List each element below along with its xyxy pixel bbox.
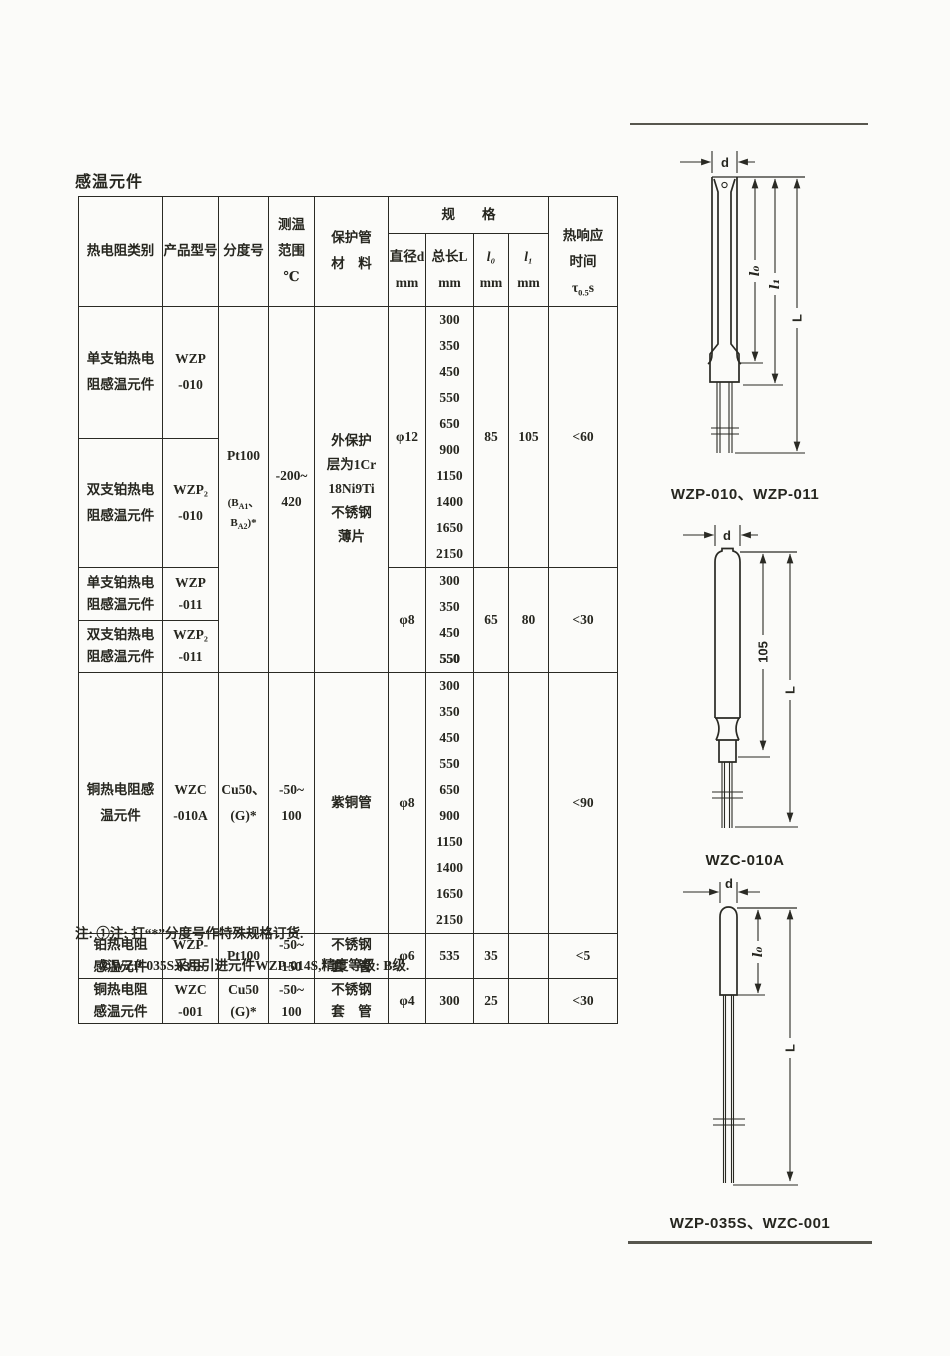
cell-response-time: <90 [549,672,618,933]
dim-label-d: d [721,155,729,170]
diagram-wzc010a-probe: d 105 L [655,525,830,845]
dim-label-d: d [725,876,733,891]
spec-table: 热电阻类别 产品型号 分度号 测温 范围 ℃ 保护管 材 料 规 格 热响应 时… [78,196,618,1024]
page-title: 感温元件 [75,168,143,192]
cell-model: WZC -001 [163,978,219,1023]
cell-model: WZP₂ -010 [163,438,219,567]
cell-index-no: Cu50 (G)* [219,978,269,1023]
cell-sheath-material: 不锈钢 套 管 [315,978,389,1023]
cell-model: WZP -010 [163,306,219,438]
dim-label-L: L [783,1044,798,1052]
cell-category: 铜热电阻 感温元件 [79,978,163,1023]
resp-line2: 时间 [570,254,597,269]
cell-l1: 80 [509,567,549,672]
cell-total-lengths: 535 [426,933,474,978]
cell-l1: 105 [509,306,549,567]
col-header-category: 热电阻类别 [79,197,163,307]
col-header-spec-group: 规 格 [389,197,549,234]
cell-sheath-material: 紫铜管 [315,672,389,933]
cell-l0: 25 [474,978,509,1023]
cell-temp-range: -200~ 420 [269,306,315,672]
cell-index-no: Pt100 (BA1、BA2)* [219,306,269,672]
cell-l0: 85 [474,306,509,567]
cell-total-lengths: 300 350 450 550 650 900 1150 1400 1650 2… [426,306,474,567]
cell-l0: 35 [474,933,509,978]
resp-line1: 热响应 [563,228,604,243]
length-value-bold: 550 [439,651,459,666]
tau-subscript: 0.5 [578,288,589,298]
top-divider-rule [630,123,868,125]
col-header-temp-range: 测温 范围 ℃ [269,197,315,307]
col-header-total-length: 总长L mm [426,234,474,307]
col-header-thermal-response: 热响应 时间 τ0.5s [549,197,618,307]
cell-temp-range: -50~ 100 [269,672,315,933]
col-header-index-no: 分度号 [219,197,269,307]
diagram-wzp035s-probe: d l₀ L [655,880,830,1198]
col-header-l1: l₁ mm [509,234,549,307]
table-notes: 注: ①注: 打“*”分度号作特殊规格订货. ②WZP-035S采用引进元件WZ… [75,924,409,976]
cell-temp-range: -50~ 100 [269,978,315,1023]
col-header-model: 产品型号 [163,197,219,307]
cell-l0: 65 [474,567,509,672]
cell-l1 [509,978,549,1023]
cell-l0 [474,672,509,933]
note-line-2: ②WZP-035S采用引进元件WZP-014S,精度等级: B级. [99,956,409,976]
diagram-2-caption: WZC-010A [640,852,850,869]
dim-label-L: L [790,314,805,322]
cell-category: 双支铂热电 阻感温元件 [79,438,163,567]
table-row: 单支铂热电 阻感温元件 WZP -010 Pt100 (BA1、BA2)* -2… [79,306,618,438]
cell-diameter: φ8 [389,672,426,933]
table-row: 铜热电阻感 温元件 WZC -010A Cu50、 (G)* -50~ 100 … [79,672,618,933]
cell-sheath-material: 外保护 层为1Cr 18Ni9Ti 不锈钢 薄片 [315,306,389,672]
tau-unit: s [589,280,594,295]
cell-total-lengths: 300 350 450 550 650 900 1150 1400 1650 2… [426,672,474,933]
cell-response-time: <30 [549,567,618,672]
diagram-wzp010-probe: d l₀ l₁ L [655,148,830,463]
cell-l1 [509,672,549,933]
cell-category: 单支铂热电 阻感温元件 [79,306,163,438]
col-header-diameter: 直径d mm [389,234,426,307]
cell-index-no: Cu50、 (G)* [219,672,269,933]
table-row: 铜热电阻 感温元件 WZC -001 Cu50 (G)* -50~ 100 不锈… [79,978,618,1023]
cell-total-lengths: 300 [426,978,474,1023]
cell-category: 单支铂热电 阻感温元件 [79,567,163,620]
cell-index-subline: (BA1、BA2)* [219,495,268,535]
dim-label-L: L [783,686,798,694]
cell-diameter: φ8 [389,567,426,672]
scanned-document-page: 感温元件 热电阻类别 产品型号 分度号 测温 范围 ℃ 保护管 材 料 规 格 … [0,0,950,1356]
col-header-l0: l₀ mm [474,234,509,307]
cell-response-time: <60 [549,306,618,567]
dim-label-d: d [723,528,731,543]
cell-diameter: φ12 [389,306,426,567]
dim-label-105: 105 [756,641,771,663]
dim-label-l1: l₁ [768,279,783,290]
cell-model: WZC -010A [163,672,219,933]
cell-total-lengths: 300 350 450 550 [426,567,474,672]
cell-l1 [509,933,549,978]
diagram-3-caption: WZP-035S、WZC-001 [630,1212,870,1233]
dim-label-l0: l₀ [748,265,763,276]
cell-diameter: φ4 [389,978,426,1023]
cell-model: WZP₂ -011 [163,620,219,672]
bottom-divider-rule [628,1241,872,1244]
cell-model: WZP -011 [163,567,219,620]
note-line-1: 注: ①注: 打“*”分度号作特殊规格订货. [75,924,409,944]
cell-category: 双支铂热电 阻感温元件 [79,620,163,672]
cell-response-time: <30 [549,978,618,1023]
dim-label-l0: l₀ [751,946,766,957]
cell-response-time: <5 [549,933,618,978]
diagram-1-caption: WZP-010、WZP-011 [640,483,850,504]
col-header-sheath-material: 保护管 材 料 [315,197,389,307]
cell-category: 铜热电阻感 温元件 [79,672,163,933]
